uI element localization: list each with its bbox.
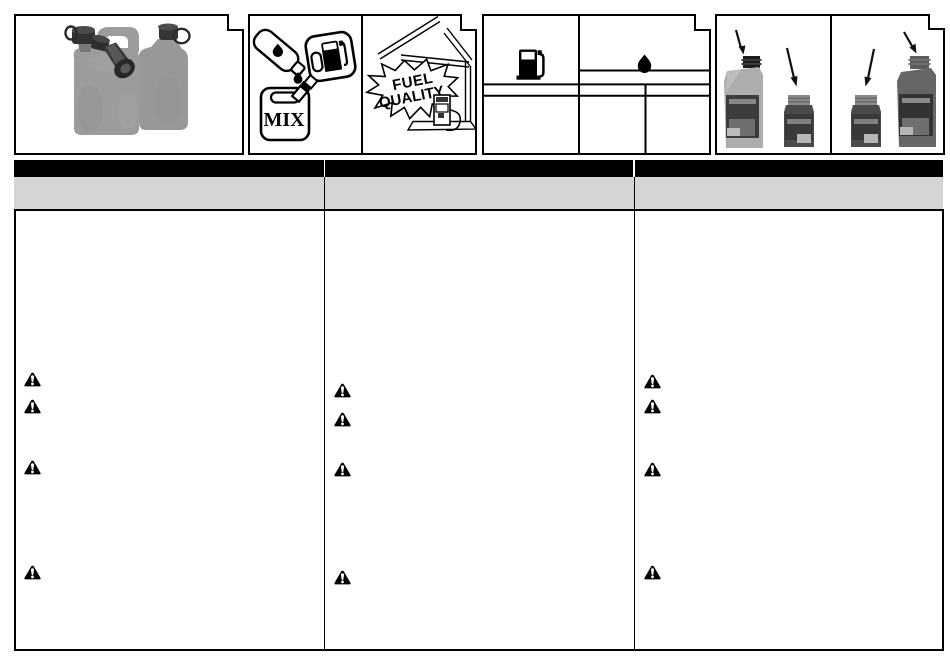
svg-text:MIX: MIX	[263, 109, 305, 131]
